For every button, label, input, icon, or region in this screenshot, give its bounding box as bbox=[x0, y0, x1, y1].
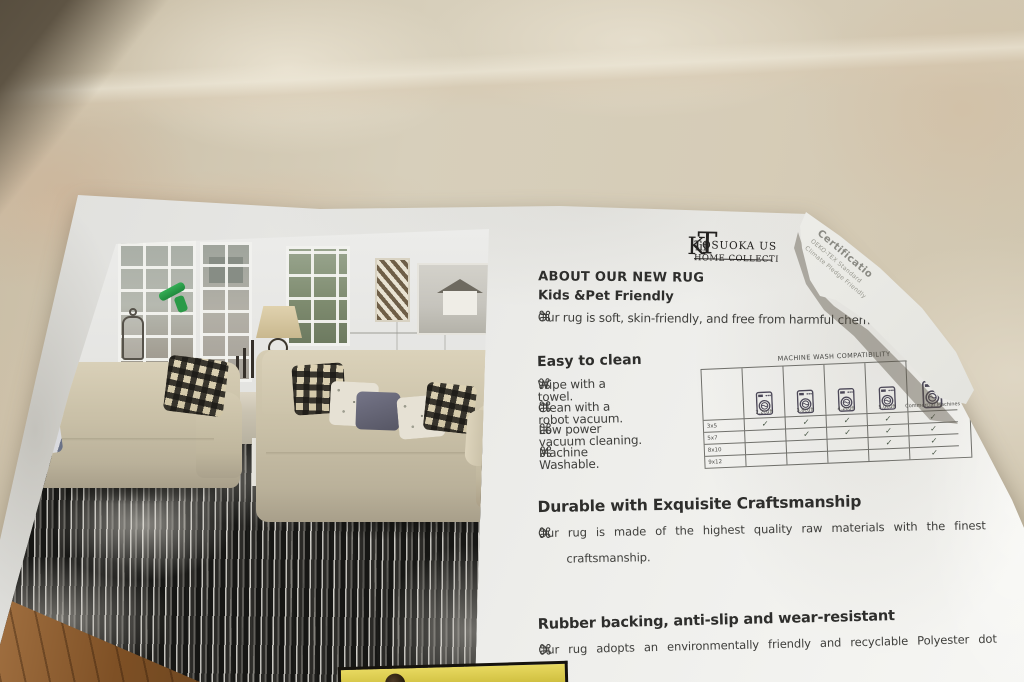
check-mark: ✓ bbox=[802, 417, 809, 426]
check-mark: ✓ bbox=[843, 416, 850, 425]
about-bullet-text: Our rug is soft, skin-friendly, and free… bbox=[538, 311, 887, 326]
tag-dot bbox=[385, 673, 406, 682]
easy-clean-title: Easy to clean bbox=[537, 353, 642, 369]
photo-of-rug-flyer: ABOUT OUR NEW RUG Kids &Pet Friendly ⌘Ou… bbox=[0, 0, 1024, 682]
capacity-label: 4.2cuft bbox=[837, 406, 855, 413]
list-item: ⌘Machine Washable. bbox=[539, 445, 644, 460]
table-cell bbox=[868, 447, 909, 461]
capacity-label: 2.2cuft bbox=[755, 409, 773, 416]
column-header: 5.0cuft bbox=[864, 361, 907, 413]
living-room-photo bbox=[0, 0, 1024, 682]
painting-house bbox=[443, 291, 477, 315]
easy-clean-section: Easy to clean ⌘Wipe with a towel. ⌘Clean… bbox=[537, 353, 644, 460]
rubber-text: Our rug adopts an environmentally friend… bbox=[538, 633, 997, 656]
table-corner-cell bbox=[702, 368, 744, 420]
durable-title: Durable with Exquisite Craftsmanship bbox=[537, 492, 1007, 516]
candlestick bbox=[243, 348, 246, 378]
check-mark: ✓ bbox=[885, 438, 892, 447]
list-item-text: Machine Washable. bbox=[539, 445, 644, 471]
table-cell: ✓ bbox=[909, 445, 959, 459]
capacity-label: 3.8cuft bbox=[796, 407, 814, 414]
table-cell bbox=[745, 452, 786, 466]
flyer-card-wrap: ABOUT OUR NEW RUG Kids &Pet Friendly ⌘Ou… bbox=[0, 0, 1024, 682]
table-cell bbox=[786, 451, 827, 465]
table-cell bbox=[827, 449, 868, 463]
check-mark: ✓ bbox=[931, 436, 938, 445]
rubber-bullet: ⌘Our rug adopts an environmentally frien… bbox=[538, 633, 1018, 657]
list-item: ⌘Clean with a robot vacuum. bbox=[538, 400, 643, 415]
wire-lantern bbox=[122, 316, 144, 360]
durable-section: Durable with Exquisite Craftsmanship ⌘Ou… bbox=[537, 492, 1008, 566]
durable-text: Our rug is made of the highest quality r… bbox=[538, 520, 986, 539]
check-mark: ✓ bbox=[844, 428, 851, 437]
dark-pillow bbox=[355, 391, 400, 431]
rubber-section: Rubber backing, anti-slip and wear-resis… bbox=[538, 606, 1019, 657]
check-mark: ✓ bbox=[803, 429, 810, 438]
lamp-shade bbox=[256, 306, 302, 338]
candlestick bbox=[251, 340, 254, 378]
farmhouse-painting bbox=[417, 263, 497, 335]
check-mark: ✓ bbox=[931, 448, 938, 457]
check-mark: ✓ bbox=[761, 419, 768, 428]
check-mark: ✓ bbox=[930, 424, 937, 433]
column-header: 3.8cuft bbox=[782, 365, 825, 417]
rubber-title: Rubber backing, anti-slip and wear-resis… bbox=[538, 606, 1018, 632]
bolster-pillow bbox=[464, 409, 494, 467]
plaid-pillow bbox=[163, 355, 229, 418]
brand-tagline: HOME COLLECTI bbox=[694, 254, 779, 264]
row-label: 9x12 bbox=[705, 454, 745, 468]
check-mark: ✓ bbox=[884, 414, 891, 423]
capacity-label: 5.0cuft bbox=[878, 404, 896, 411]
sofa-seat-line bbox=[266, 452, 486, 462]
lantern-ring bbox=[129, 308, 137, 316]
flyer-card: ABOUT OUR NEW RUG Kids &Pet Friendly ⌘Ou… bbox=[0, 0, 1024, 682]
check-mark: ✓ bbox=[930, 412, 937, 421]
column-header: 2.2cuft bbox=[741, 367, 784, 419]
durable-bullet: ⌘Our rug is made of the highest quality … bbox=[538, 519, 1008, 540]
capacity-label: Commercial Machines bbox=[905, 401, 960, 409]
list-item: ⌘Low power vacuum cleaning. bbox=[538, 422, 643, 437]
striped-pillow bbox=[23, 400, 64, 456]
zigzag-wall-art bbox=[375, 258, 410, 322]
list-item: ⌘Wipe with a towel. bbox=[537, 377, 642, 392]
durable-text-line2: craftsmanship. bbox=[566, 546, 1008, 565]
check-mark: ✓ bbox=[885, 426, 892, 435]
column-header: 4.2cuft bbox=[823, 363, 866, 415]
